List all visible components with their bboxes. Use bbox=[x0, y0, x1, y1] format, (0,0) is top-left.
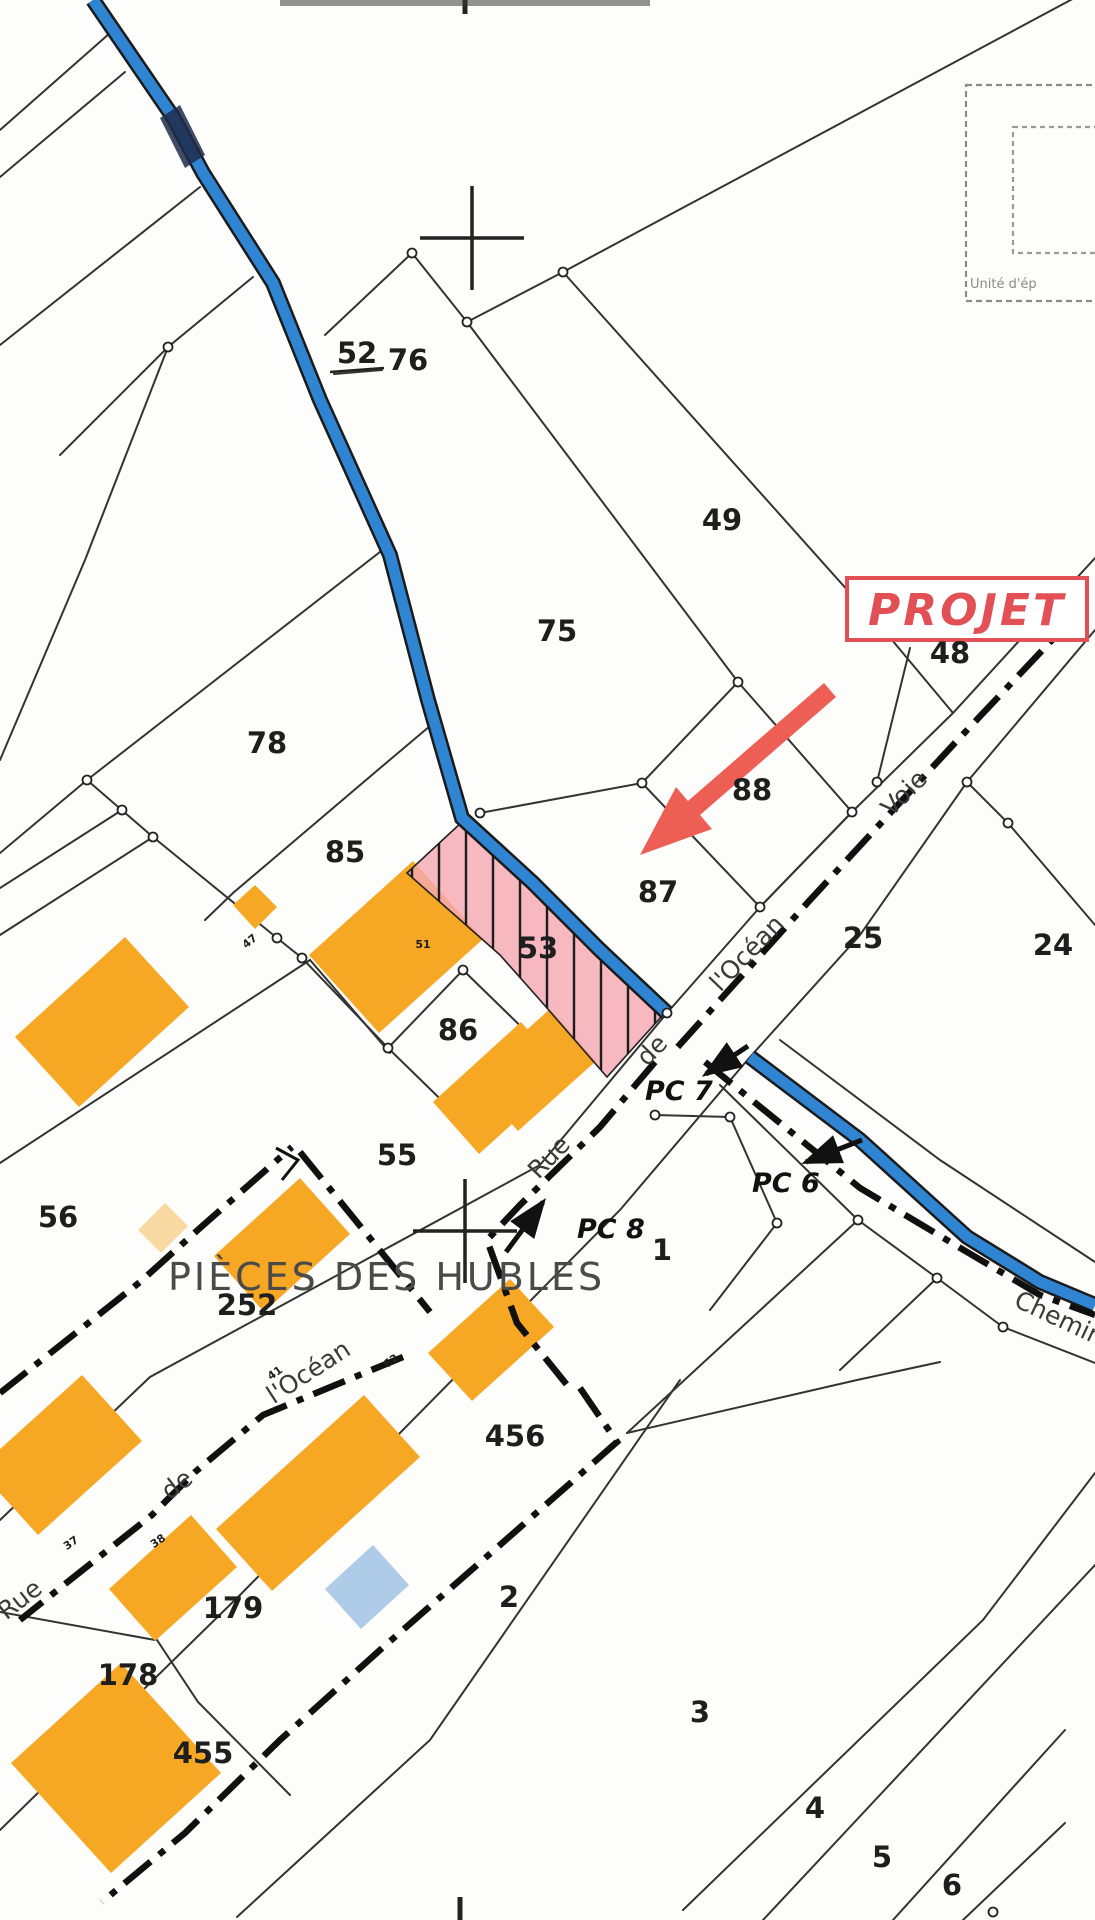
parcel-number: 179 bbox=[203, 1591, 264, 1625]
small-number: 47 bbox=[240, 931, 260, 951]
parcel-number: 75 bbox=[537, 614, 577, 648]
pc7-arrow bbox=[706, 1046, 748, 1074]
parcel-number: 24 bbox=[1033, 928, 1073, 962]
area-name: PIÈCES DES HUBLES bbox=[168, 1255, 605, 1299]
parcel-number: 78 bbox=[247, 726, 287, 760]
small-number: 37 bbox=[61, 1533, 81, 1552]
parcel-number: 455 bbox=[173, 1736, 234, 1770]
map-canvas: 5276497548887885872524538655561252456217… bbox=[0, 0, 1095, 1920]
road-bridge-mark bbox=[160, 105, 205, 168]
parcel-number: 49 bbox=[702, 503, 742, 537]
parcel-number: 85 bbox=[325, 835, 365, 869]
street-name: Rue bbox=[522, 1130, 576, 1184]
parcel-number: 2 bbox=[499, 1580, 519, 1614]
pc-mark: PC 8 bbox=[577, 1214, 645, 1245]
parcel-number: 456 bbox=[485, 1419, 546, 1453]
pc-mark: PC 7 bbox=[645, 1076, 713, 1107]
parcel-number: 178 bbox=[98, 1658, 159, 1692]
parcel-number: 55 bbox=[377, 1138, 417, 1172]
street-name: Voie bbox=[875, 764, 933, 822]
parcel-number: 88 bbox=[732, 773, 772, 807]
parcel-number: 87 bbox=[638, 875, 678, 909]
building-light bbox=[138, 1203, 188, 1253]
small-number: 51 bbox=[415, 938, 430, 951]
street-name: de bbox=[156, 1463, 198, 1505]
parcel-number: 3 bbox=[690, 1695, 710, 1729]
parcel-number: 1 bbox=[652, 1233, 672, 1267]
building bbox=[0, 1375, 142, 1535]
parcel-number: 76 bbox=[388, 343, 428, 377]
parcel-number: 48 bbox=[930, 636, 970, 670]
parcel-number: 86 bbox=[438, 1013, 478, 1047]
building-blue bbox=[325, 1545, 409, 1629]
legend-text: Unité d'ép bbox=[970, 277, 1037, 292]
building bbox=[15, 937, 189, 1107]
parcel-number: 5 bbox=[872, 1840, 892, 1874]
building bbox=[233, 885, 277, 929]
parcel-number: 53 bbox=[518, 931, 558, 965]
road-rue-de-locean-north bbox=[93, 0, 667, 1013]
building bbox=[216, 1395, 420, 1591]
parcel-number: 56 bbox=[38, 1200, 78, 1234]
projet-label: PROJET bbox=[868, 585, 1066, 636]
project-arrow bbox=[640, 683, 836, 855]
parcel-number: 52 bbox=[337, 336, 377, 370]
cadastral-map-page: 5276497548887885872524538655561252456217… bbox=[0, 0, 1095, 1920]
parcel-number: 25 bbox=[843, 921, 883, 955]
pc-mark: PC 6 bbox=[752, 1168, 820, 1199]
legend-box bbox=[966, 85, 1095, 301]
parcel-number: 4 bbox=[805, 1791, 825, 1825]
boundary-direction-arrow bbox=[276, 1148, 298, 1180]
parcel-number: 6 bbox=[942, 1868, 962, 1902]
scan-edge-artifact bbox=[280, 0, 650, 6]
